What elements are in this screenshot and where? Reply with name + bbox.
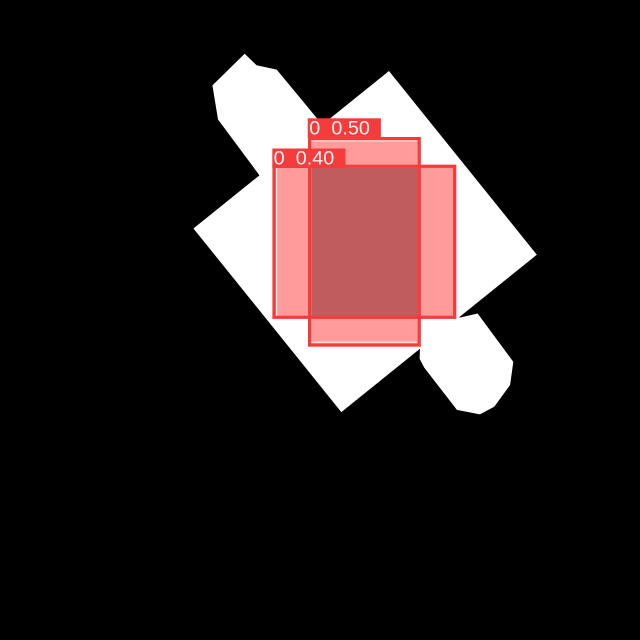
svg-text:00.50: 00.50 bbox=[309, 117, 370, 139]
svg-text:00.40: 00.40 bbox=[274, 148, 335, 170]
